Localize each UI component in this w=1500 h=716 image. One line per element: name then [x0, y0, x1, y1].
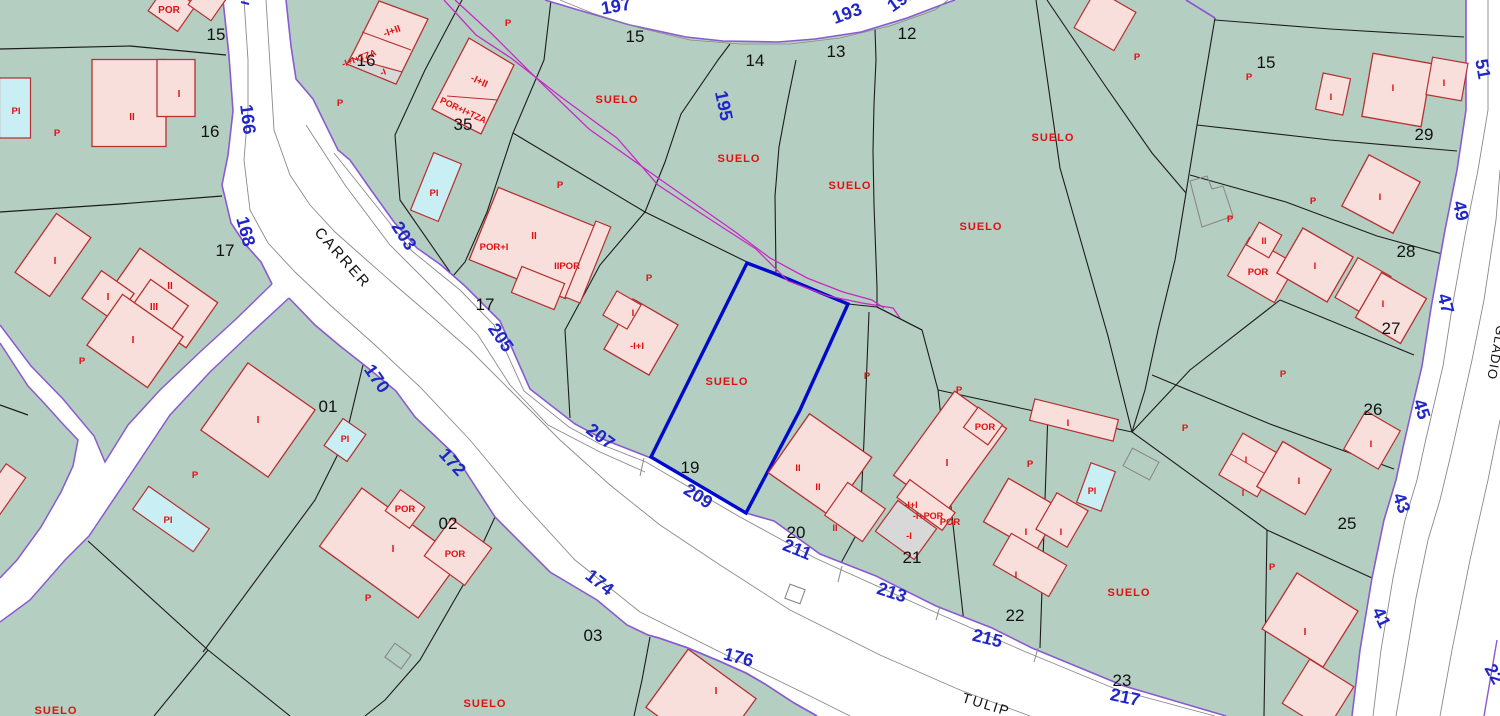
svg-text:I: I [392, 544, 395, 555]
svg-text:-I+I: -I+I [904, 500, 917, 510]
svg-text:I: I [1379, 192, 1382, 203]
svg-text:PI: PI [12, 106, 21, 117]
svg-text:POR: POR [1248, 267, 1269, 278]
svg-text:P: P [1269, 562, 1276, 573]
svg-text:I: I [1067, 418, 1070, 429]
svg-text:P: P [1134, 52, 1141, 63]
svg-text:13: 13 [827, 42, 846, 61]
svg-text:P: P [646, 273, 653, 284]
svg-text:II: II [795, 463, 800, 474]
svg-text:II: II [531, 231, 537, 242]
svg-text:P: P [1027, 459, 1034, 470]
svg-text:I: I [257, 415, 260, 426]
svg-text:I: I [1245, 455, 1248, 465]
svg-text:P: P [505, 18, 512, 29]
svg-text:I: I [1025, 527, 1028, 538]
svg-text:19: 19 [681, 458, 700, 477]
svg-text:POR: POR [158, 5, 180, 16]
svg-text:I: I [1370, 439, 1373, 450]
svg-text:P: P [79, 356, 86, 367]
svg-text:I: I [107, 292, 110, 303]
svg-text:166: 166 [236, 103, 260, 135]
svg-text:IIPOR: IIPOR [554, 261, 580, 272]
svg-text:P: P [1310, 196, 1317, 207]
svg-text:I: I [1242, 488, 1245, 498]
svg-text:15: 15 [207, 25, 226, 44]
svg-text:P: P [192, 470, 199, 481]
svg-text:P: P [956, 385, 963, 396]
svg-text:51: 51 [1471, 57, 1494, 80]
svg-text:-I: -I [906, 531, 912, 542]
svg-text:POR: POR [445, 549, 466, 560]
svg-text:49: 49 [1449, 199, 1473, 223]
svg-text:P: P [1280, 369, 1287, 380]
svg-text:01: 01 [319, 397, 338, 416]
svg-text:SUELO: SUELO [464, 698, 507, 710]
svg-text:I: I [632, 308, 635, 319]
svg-text:22: 22 [1006, 606, 1025, 625]
svg-text:II: II [815, 482, 820, 493]
svg-text:23: 23 [1113, 671, 1132, 690]
svg-text:17: 17 [476, 295, 495, 314]
svg-text:P: P [337, 98, 344, 109]
svg-text:SUELO: SUELO [706, 376, 749, 388]
svg-text:PI: PI [430, 188, 439, 199]
svg-text:I: I [1392, 83, 1395, 94]
svg-text:SUELO: SUELO [718, 153, 761, 165]
svg-text:I: I [1015, 570, 1018, 581]
svg-text:P: P [557, 180, 564, 191]
svg-text:P: P [365, 593, 372, 604]
svg-text:03: 03 [584, 626, 603, 645]
svg-text:-I+I: -I+I [630, 341, 644, 352]
svg-text:SUELO: SUELO [35, 705, 78, 716]
svg-text:P: P [54, 128, 61, 139]
svg-text:SUELO: SUELO [1032, 132, 1075, 144]
svg-text:POR: POR [975, 422, 996, 433]
svg-text:P: P [1182, 423, 1189, 434]
svg-text:II: II [129, 112, 135, 123]
svg-text:SUELO: SUELO [829, 180, 872, 192]
svg-text:P: P [1246, 72, 1253, 83]
svg-text:SUELO: SUELO [596, 94, 639, 106]
svg-text:III: III [150, 302, 159, 313]
svg-text:15: 15 [1257, 53, 1276, 72]
svg-text:PI: PI [164, 515, 173, 526]
svg-text:15: 15 [626, 27, 645, 46]
svg-text:26: 26 [1364, 400, 1383, 419]
svg-text:PI: PI [341, 434, 350, 444]
svg-text:I: I [1060, 527, 1063, 538]
svg-text:21: 21 [903, 548, 922, 567]
svg-text:27: 27 [1382, 319, 1401, 338]
svg-text:I: I [1443, 78, 1446, 89]
svg-text:I: I [1330, 92, 1333, 103]
svg-text:29: 29 [1415, 125, 1434, 144]
svg-text:I: I [1314, 261, 1317, 272]
svg-text:I: I [1298, 476, 1301, 487]
svg-text:25: 25 [1338, 514, 1357, 533]
svg-text:II: II [167, 281, 173, 292]
svg-text:20: 20 [787, 523, 806, 542]
svg-text:I: I [715, 686, 718, 697]
svg-text:I: I [1304, 627, 1307, 638]
svg-text:28: 28 [1397, 242, 1416, 261]
svg-text:II: II [1261, 236, 1266, 246]
svg-text:17: 17 [216, 241, 235, 260]
svg-text:POR: POR [395, 504, 416, 515]
svg-text:I: I [132, 335, 135, 346]
svg-text:I: I [54, 256, 57, 267]
svg-text:14: 14 [746, 51, 765, 70]
svg-text:I: I [178, 89, 181, 100]
svg-text:I: I [946, 458, 949, 469]
svg-text:SUELO: SUELO [1108, 587, 1151, 599]
svg-text:P: P [864, 371, 871, 382]
svg-text:12: 12 [898, 24, 917, 43]
svg-text:16: 16 [201, 122, 220, 141]
svg-text:02: 02 [439, 514, 458, 533]
svg-text:I: I [1382, 299, 1385, 310]
svg-text:SUELO: SUELO [960, 221, 1003, 233]
svg-text:P: P [1227, 214, 1234, 225]
svg-text:POR: POR [940, 517, 961, 528]
svg-text:II: II [832, 523, 837, 533]
svg-text:POR+I: POR+I [480, 242, 509, 253]
svg-text:PI: PI [1088, 486, 1097, 496]
